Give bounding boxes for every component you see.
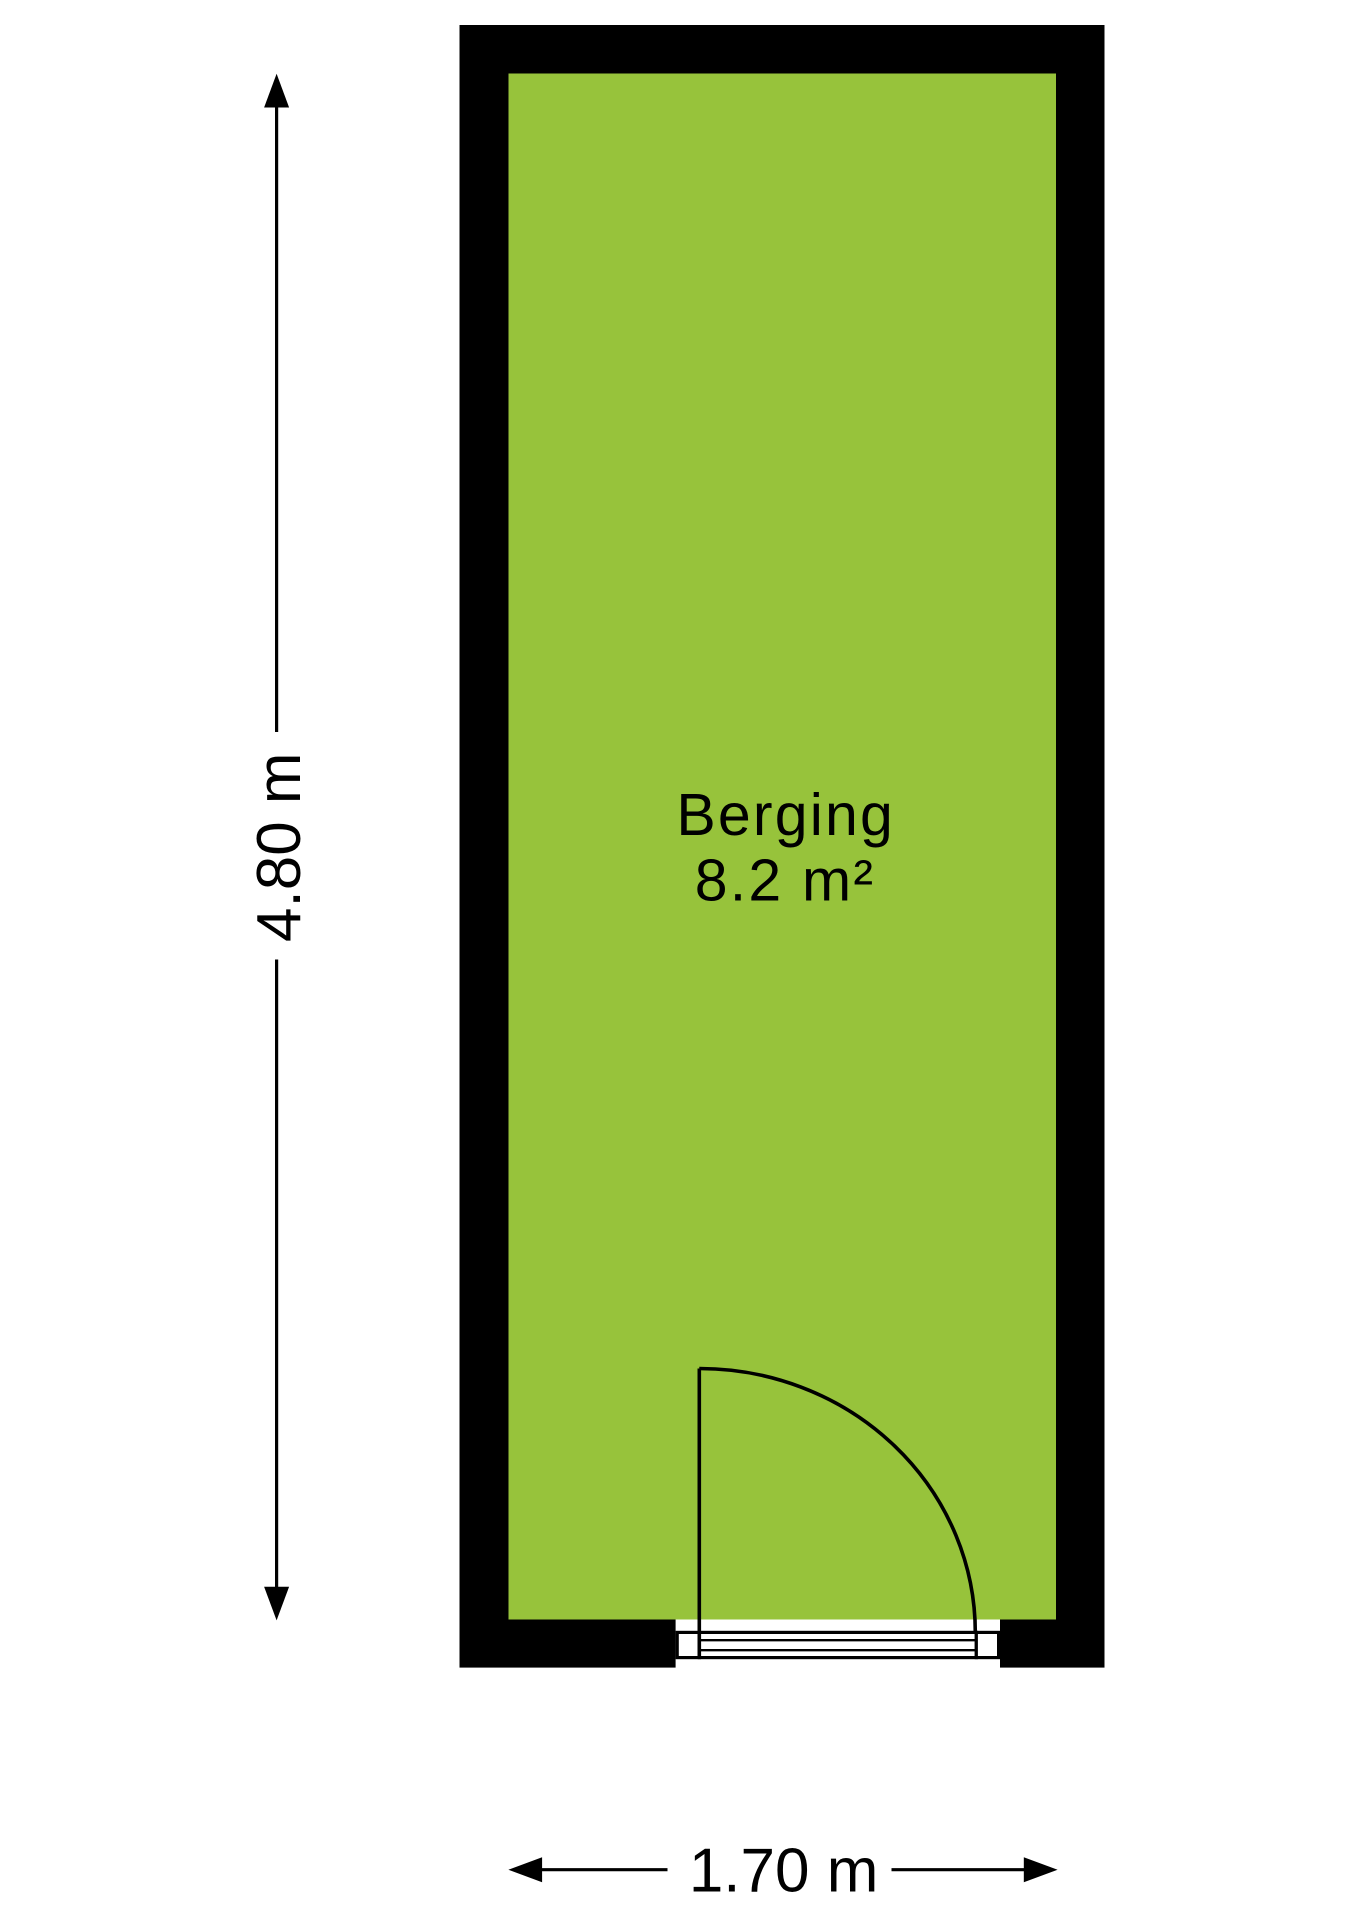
svg-text:1.70 m: 1.70 m (689, 1837, 879, 1906)
svg-text:4.80 m: 4.80 m (245, 752, 314, 942)
svg-text:Berging: Berging (676, 782, 895, 848)
svg-text:8.2 m²: 8.2 m² (695, 847, 875, 913)
